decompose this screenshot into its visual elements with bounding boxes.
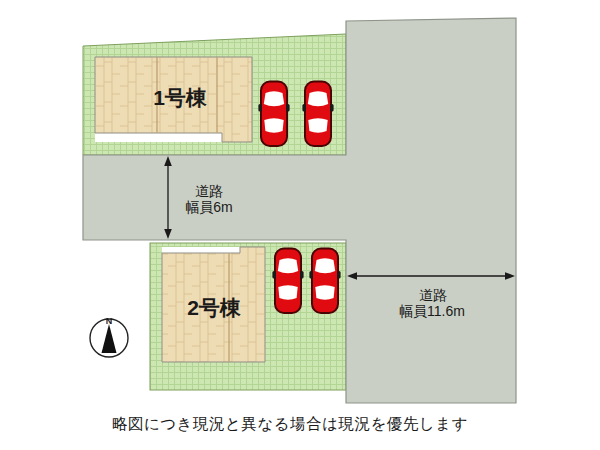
building-1: 1号棟: [95, 57, 252, 142]
building-2: 2号棟: [162, 247, 265, 362]
car-icon: [272, 249, 303, 314]
disclaimer-caption: 略図につき現況と異なる場合は現況を優先します: [112, 415, 468, 432]
road-11-6m-name: 道路: [419, 287, 447, 303]
car-icon: [302, 82, 333, 147]
road-6m-width: 幅員6m: [185, 199, 232, 215]
building-1-label: 1号棟: [153, 86, 208, 109]
car-icon: [258, 82, 289, 147]
building-1-entrance-pad: [95, 133, 222, 142]
road-11-6m-width: 幅員11.6m: [399, 303, 465, 319]
building-2-label: 2号棟: [187, 296, 242, 319]
road-6m-name: 道路: [195, 183, 223, 199]
compass: N: [90, 316, 128, 357]
site-plan-drawing: 1号棟 2号棟 道路 幅員6m 道路 幅員11.6m N 略図につき現況と異なる…: [0, 0, 600, 450]
compass-north-label: N: [106, 316, 113, 326]
building-2-entrance-pad: [162, 247, 240, 253]
site-plan-canvas: 1号棟 2号棟 道路 幅員6m 道路 幅員11.6m N 略図につき現況と異なる…: [0, 0, 600, 450]
car-icon: [309, 249, 340, 314]
